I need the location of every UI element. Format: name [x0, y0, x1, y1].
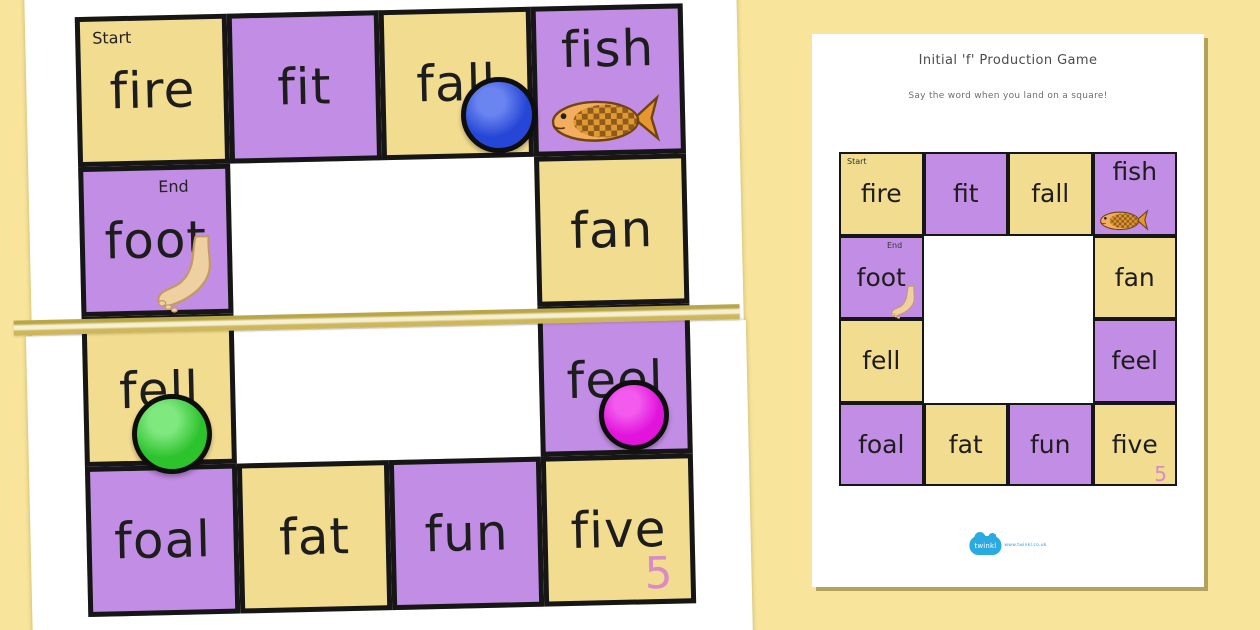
- preview-word-fall: fall: [1031, 179, 1069, 208]
- preview-word-fire: fire: [861, 179, 902, 208]
- preview-cell-fell: fell: [839, 319, 924, 403]
- preview-word-foal: foal: [858, 430, 904, 459]
- preview-cell-five: five 5: [1093, 403, 1178, 487]
- cell-fan: fan: [534, 153, 689, 306]
- preview-cell-foal: foal: [839, 403, 924, 487]
- worksheet-page: Initial 'f' Production Game Say the word…: [812, 34, 1204, 587]
- preview-end-label: End: [887, 241, 902, 250]
- preview-cell-feel: feel: [1093, 319, 1178, 403]
- preview-cell-fit: fit: [924, 152, 1009, 236]
- cell-word-fit: fit: [277, 57, 332, 116]
- cell-foal: foal: [85, 464, 240, 617]
- cell-word-fish: fish: [560, 19, 655, 79]
- blue-counter[interactable]: [461, 77, 537, 153]
- cell-fit: fit: [227, 10, 382, 163]
- preview-word-fish: fish: [1112, 157, 1157, 186]
- preview-cell-fall: fall: [1008, 152, 1093, 236]
- preview-word-fun: fun: [1030, 430, 1071, 459]
- preview-number-five: 5: [1154, 462, 1167, 486]
- preview-word-feel: feel: [1111, 346, 1158, 375]
- preview-cell-fire: Start fire: [839, 152, 924, 236]
- twinkl-cloud-icon: twinkl: [969, 536, 1001, 555]
- number-five: 5: [644, 548, 673, 600]
- magenta-counter[interactable]: [599, 380, 669, 450]
- preview-cell-fan: fan: [1093, 236, 1178, 320]
- preview-word-fit: fit: [953, 179, 979, 208]
- preview-word-fell: fell: [862, 346, 900, 375]
- page-subtitle: Say the word when you land on a square!: [812, 91, 1204, 101]
- cell-fish: fish: [531, 3, 686, 156]
- foot-icon: [890, 285, 920, 321]
- preview-cell-fun: fun: [1008, 403, 1093, 487]
- twinkl-brand-text: twinkl: [974, 542, 996, 550]
- foot-icon: [153, 233, 225, 319]
- cell-word-fire: fire: [109, 60, 196, 120]
- preview-word-fan: fan: [1115, 263, 1155, 292]
- green-counter[interactable]: [132, 394, 212, 474]
- fish-icon: [1098, 207, 1150, 233]
- preview-start-label: Start: [847, 157, 867, 166]
- page-title: Initial 'f' Production Game: [812, 53, 1204, 68]
- preview-word-fat: fat: [949, 430, 983, 459]
- fish-icon: [546, 89, 665, 150]
- cell-fire: Start fire: [75, 14, 230, 167]
- cell-fat: fat: [237, 460, 392, 613]
- end-label: End: [158, 177, 189, 197]
- board-zoom-area: Start fire fit fall fish End: [0, 0, 790, 630]
- twinkl-logo: twinkl www.twinkl.co.uk: [969, 536, 1046, 555]
- cell-word-fan: fan: [570, 200, 654, 260]
- cell-word-foal: foal: [114, 510, 212, 570]
- cell-fun: fun: [389, 457, 544, 610]
- game-board-preview: Start fire fit fall fish End foot: [839, 152, 1177, 486]
- cell-word-fun: fun: [424, 503, 509, 563]
- preview-cell-fat: fat: [924, 403, 1009, 487]
- worksheet-preview-canvas: { "colors": { "background": "#F8E49A", "…: [0, 0, 1260, 630]
- start-label: Start: [92, 28, 132, 48]
- cell-word-fat: fat: [278, 507, 350, 567]
- cell-five: five 5: [541, 453, 696, 606]
- preview-word-five: five: [1112, 430, 1158, 459]
- cell-foot: End foot: [78, 164, 233, 317]
- preview-cell-foot: End foot: [839, 236, 924, 320]
- tilted-sheets-group: Start fire fit fall fish End: [0, 0, 790, 630]
- twinkl-website-text: www.twinkl.co.uk: [1004, 543, 1046, 548]
- preview-cell-fish: fish: [1093, 152, 1178, 236]
